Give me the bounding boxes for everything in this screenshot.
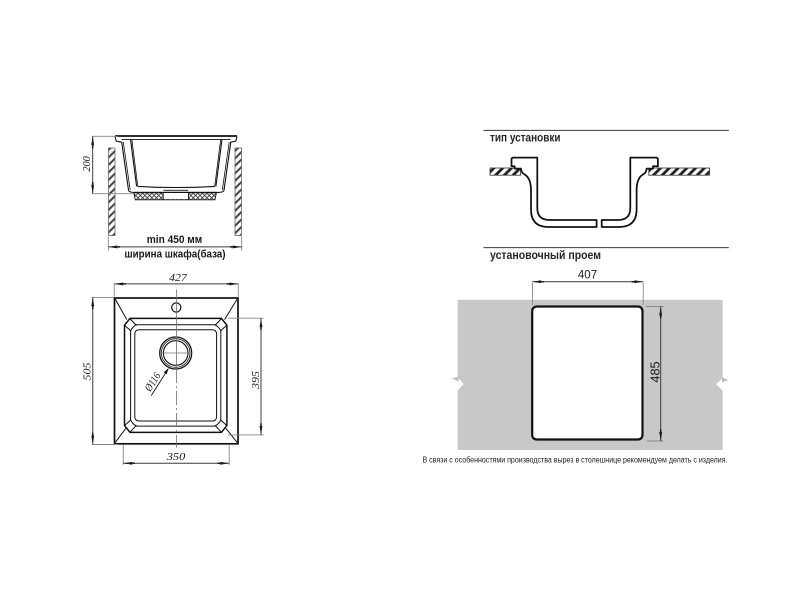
svg-text:427: 427 — [169, 272, 187, 284]
svg-text:350: 350 — [166, 451, 186, 463]
svg-text:505: 505 — [81, 362, 93, 381]
svg-text:200: 200 — [81, 156, 93, 172]
svg-text:В связи с особенностями произв: В связи с особенностями производства выр… — [423, 454, 728, 464]
svg-text:ширина шкафа(база): ширина шкафа(база) — [125, 248, 226, 260]
svg-text:485: 485 — [649, 361, 663, 382]
svg-text:407: 407 — [578, 270, 597, 282]
svg-text:тип установки: тип установки — [490, 131, 561, 145]
svg-text:395: 395 — [250, 370, 262, 390]
svg-text:установочный проем: установочный проем — [490, 248, 601, 262]
svg-text:min 450 мм: min 450 мм — [147, 234, 203, 246]
